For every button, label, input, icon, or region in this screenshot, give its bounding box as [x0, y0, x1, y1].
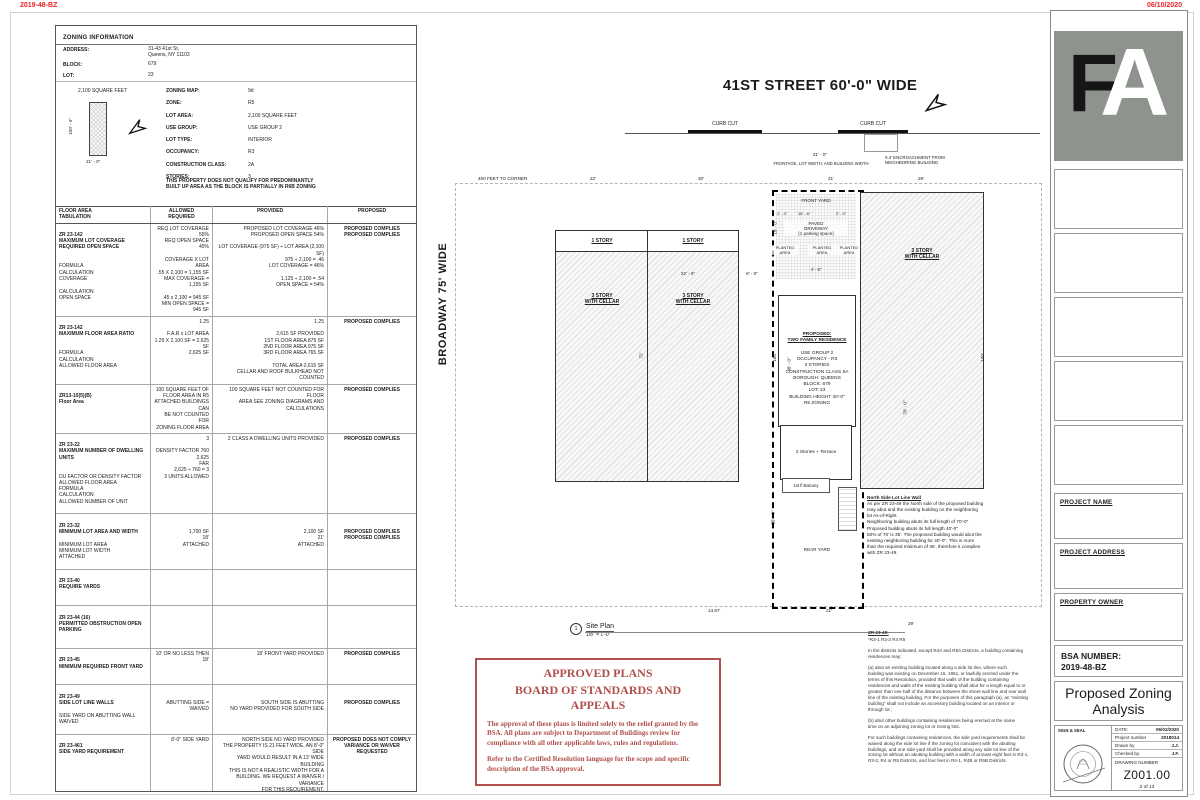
block-value: 679 — [148, 61, 156, 67]
property-owner-box: PROPERTY OWNER — [1054, 593, 1183, 641]
zr-sub-lines: MINIMUM LOT AREA MINIMUM LOT WIDTH ATTAC… — [59, 542, 147, 561]
drawn-by-label: Drawn by — [1115, 743, 1134, 748]
dim-front-right: 2' - 3" — [836, 211, 846, 216]
corner-distance-note: 450 FEET TO CORNER — [478, 176, 527, 181]
address-label: ADDRESS: — [63, 47, 89, 53]
caption-line — [585, 632, 905, 633]
provided-cell — [213, 570, 328, 605]
lot-label: LOT: — [63, 73, 74, 79]
col-header: ALLOWED REQUIRED — [151, 206, 213, 223]
col-header: PROPOSED — [328, 206, 416, 223]
dim-bottom-21: 21' — [826, 608, 832, 613]
dim-72ft: 72' — [639, 353, 644, 359]
north-note-body: As per ZR 23-49 the North side of the pr… — [867, 501, 1047, 556]
zr-reference: ZR 23-49 SIDE LOT LINE WALLS — [59, 694, 147, 707]
zoning-field-label: ZONE: — [166, 100, 248, 112]
curb-cut-label: CURB CUT — [688, 121, 762, 127]
doc-date-top-right: 06/10/2020 — [1147, 2, 1182, 9]
sheet-title-box: Proposed Zoning Analysis — [1054, 681, 1183, 721]
proposed-cell: PROPOSED COMPLIES PROPOSED COMPLIES — [328, 224, 416, 316]
allowed-cell: 10' OR NO LESS THEN 18' — [151, 649, 213, 684]
dim-22ft: 22' — [590, 176, 596, 181]
stamp-title-2: BOARD OF STANDARDS AND APPEALS — [487, 683, 709, 713]
row-label-cell: ZR 23-40 REQUIRE YARDS — [56, 570, 151, 605]
zr-reference: ZR 23-45 MINIMUM REQUIRED FRONT YARD — [59, 657, 147, 670]
project-number-value: 2018014 — [1161, 735, 1179, 740]
stamp-title-1: APPROVED PLANS — [487, 666, 709, 681]
tabulation-row: ZR 23-32 MINIMUM LOT AREA AND WIDTH MINI… — [56, 514, 416, 569]
checked-by-value: J.F. — [1172, 751, 1179, 756]
meta-rows: DATE: 06/02/2020 Project number 2018014 … — [1112, 726, 1182, 790]
proposed-cell: PROPOSED COMPLIES — [328, 434, 416, 514]
divider — [56, 81, 416, 82]
frontage-caption: FRONTAGE, LOT WIDTH, AND BUILDING WIDTH — [746, 161, 896, 166]
dim-4-6: 4' - 6" — [800, 267, 832, 272]
allowed-cell — [151, 570, 213, 605]
dim-21ft: 21' — [828, 176, 834, 181]
site-plan: 41ST STREET 60'-0" WIDE BROADWAY 75' WID… — [430, 75, 1050, 665]
zr-sub-lines: FORMULA CALCULATION COVERAGE CALCULATION… — [59, 257, 147, 301]
provided-cell: 100 SQUARE FEET NOT COUNTED FOR FLOOR AR… — [213, 385, 328, 433]
first-floor-balcony: 1st fl Balcony — [782, 478, 830, 493]
row-label-cell: ZR 23-49 SIDE LOT LINE WALLS SIDE YARD O… — [56, 685, 151, 733]
dim-70-0: 70' - 0" — [903, 400, 908, 414]
zr-reference: ZR 23-461 SIDE YARD REQUIREMENT — [59, 743, 147, 756]
revision-box — [1054, 425, 1183, 485]
drawing-caption: 1 Site Plan 1/8" = 1'-0" — [570, 623, 614, 638]
north-arrow-icon — [922, 90, 948, 116]
zr-note-districts: *R3-1 R3-2 R4 R5 — [868, 637, 1048, 643]
floor-area-tabulation-table: FLOOR AREA TABULATION ALLOWED REQUIRED P… — [56, 206, 416, 791]
curb-cut-bar — [688, 130, 762, 133]
allowed-cell: 3 DENSITY FACTOR 760 2,625 FAR 2,625 ÷ 7… — [151, 434, 213, 514]
zoning-information-title: ZONING INFORMATION — [63, 35, 133, 41]
lot-depth-dim: 100' - 0" — [68, 118, 73, 135]
project-address-box: PROJECT ADDRESS — [1054, 543, 1183, 589]
dim-30ft: 30' — [698, 176, 704, 181]
allowed-cell: REQ LOT COVERAGE 55% REQ OPEN SPACE 45% … — [151, 224, 213, 316]
zoning-field-label: ZONING MAP: — [166, 88, 248, 100]
zoning-fields: ZONING MAP: 9d ZONE: R5 LOT AREA: 2,100 … — [166, 88, 411, 186]
allowed-cell: 1,700 SF 18' ATTACHED — [151, 514, 213, 568]
drawn-by-value: J.J. — [1171, 743, 1179, 748]
zoning-field-label: LOT TYPE: — [166, 137, 248, 149]
zr-reference: ZR 23-32 MINIMUM LOT AREA AND WIDTH — [59, 523, 147, 536]
neighbor-building-right: 3 STORY WITH CELLAR — [860, 192, 984, 489]
proposed-cell: PROPOSED COMPLIES — [328, 649, 416, 684]
zoning-field-label: OCCUPANCY: — [166, 149, 248, 161]
checked-by-label: Checked by — [1115, 751, 1139, 756]
rear-yard-label: REAR YARD — [782, 547, 852, 552]
proposed-cell — [328, 570, 416, 605]
curb-cut-bar — [838, 130, 908, 133]
zr-sub-lines: FORMULA CALCULATION ALLOWED FLOOR AREA — [59, 344, 147, 369]
drawing-sheet: 2019-48-BZ 06/10/2020 ZONING INFORMATION… — [0, 0, 1200, 800]
proposed-cell: PROPOSED COMPLIES — [328, 385, 416, 433]
proposed-building-text: PROPOSED: TWO FAMILY RESIDENCE USE GROUP… — [781, 326, 853, 413]
neighbor-building-2-label: 3 STORY WITH CELLAR — [648, 293, 738, 305]
zoning-field-value: 2A — [248, 162, 411, 174]
col-header: PROVIDED — [213, 206, 328, 223]
caption-title: Site Plan — [586, 623, 614, 632]
proposed-building-body: USE GROUP 2 OCCUPANCY - R3 3 STORIES CON… — [781, 351, 853, 407]
signature-meta-box: SIGN & SEAL DATE: 06/02/2020 — [1054, 725, 1183, 791]
zoning-field-value: USE GROUP 2 — [248, 125, 411, 137]
date-label: DATE: — [1115, 727, 1128, 732]
dim-100-right: 100' — [980, 353, 985, 362]
paved-driveway-label: PAVED DRIVEWAY (1 parking space) — [784, 221, 848, 236]
dim-29ft: 29' — [918, 176, 924, 181]
proposed-building-title: PROPOSED: TWO FAMILY RESIDENCE — [781, 332, 853, 344]
zoning-field-value: R3 — [248, 149, 411, 161]
zoning-field-row: ZONE: R5 — [166, 100, 411, 112]
stamp-paragraph-2: Refer to the Certified Resolution langua… — [487, 755, 709, 774]
tabulation-row: ZR13-10(5)(B) Floor Area 100 SQUARE FEET… — [56, 385, 416, 434]
curb-cut-label: CURB CUT — [838, 121, 908, 127]
tabulation-header-row: FLOOR AREA TABULATION ALLOWED REQUIRED P… — [56, 206, 416, 224]
lot-diagram — [89, 102, 107, 156]
street-line — [625, 133, 1040, 134]
neighbor-building-1-story: 1 STORY — [556, 231, 648, 252]
dim-35-9: 35' - 9" — [771, 510, 776, 524]
planted-area-label: PLANTED AREA — [771, 245, 799, 255]
zr-reference: ZR 23-142 MAXIMUM FLOOR AREA RATIO — [59, 325, 147, 338]
zr-reference: ZR 23-142 MAXIMUM LOT COVERAGE REQUIRED … — [59, 232, 147, 251]
col-header: FLOOR AREA TABULATION — [56, 206, 151, 223]
provided-cell: NORTH SIDE NO YARD PROVIDED THE PROPERTY… — [213, 735, 328, 791]
north-arrow-icon — [126, 116, 148, 138]
zoning-note: THIS PROPERTY DOES NOT QUALIFY FOR PREDO… — [166, 178, 326, 191]
terrace-section: 2 Stories + Terrace — [780, 425, 852, 480]
zoning-field-label: CONSTRUCTION CLASS: — [166, 162, 248, 174]
zoning-field-value: INTERIOR — [248, 137, 411, 149]
dim-front-mid: 16' - 6" — [798, 211, 810, 216]
neighbor-building-2-story: 1 STORY — [648, 231, 738, 252]
encroachment-note: 0.4' ENCROACHMENT FROM NEIGHBORING BUILD… — [885, 155, 945, 165]
zoning-field-value: 2,100 SQUARE FEET — [248, 113, 411, 125]
tabulation-row: ZR 23-40 REQUIRE YARDS — [56, 570, 416, 606]
project-name-box: PROJECT NAME — [1054, 493, 1183, 539]
firm-logo: F A — [1054, 31, 1183, 161]
tabulation-row: ZR 23-45 MINIMUM REQUIRED FRONT YARD 10'… — [56, 649, 416, 685]
planted-area-label: PLANTED AREA — [808, 245, 836, 255]
allowed-cell: ABUTTING SIDE = WAIVED — [151, 685, 213, 733]
bsa-number-box: BSA NUMBER: 2019-48-BZ — [1054, 645, 1183, 677]
sheet-index: 2 of 13 — [1112, 782, 1182, 790]
dim-8-0: 8' - 0" — [735, 271, 769, 276]
zr-note-ref: ZR 23-49: — [868, 630, 889, 635]
bsa-approval-stamp: APPROVED PLANS BOARD OF STANDARDS AND AP… — [475, 658, 721, 786]
zoning-field-row: LOT TYPE: INTERIOR — [166, 137, 411, 149]
zr-note-intro: In the districts indicated, except R4A a… — [868, 648, 1048, 660]
date-value: 06/02/2020 — [1156, 727, 1179, 732]
broadway-label: BROADWAY 75' WIDE — [437, 224, 449, 384]
stamp-paragraph-1: The approval of these plans is limited s… — [487, 720, 709, 748]
zoning-field-value: 9d — [248, 88, 411, 100]
project-name-label: PROJECT NAME — [1060, 499, 1112, 506]
architect-seal-icon — [1059, 738, 1107, 786]
dim-100-left: 100' — [772, 353, 777, 362]
allowed-cell: 100 SQUARE FEET OF FLOOR AREA IN R5 ATTA… — [151, 385, 213, 433]
zr-23-49-note: ZR 23-49: *R3-1 R3-2 R4 R5 In the distri… — [868, 630, 1048, 769]
zoning-panel: ZONING INFORMATION ADDRESS: 31-43 41st S… — [55, 25, 417, 792]
tabulation-row: ZR 23-461 SIDE YARD REQUIREMENT 8'-0" SI… — [56, 735, 416, 791]
zr-note-para-a: (a) abut an existing building located al… — [868, 665, 1048, 713]
drawn-by-row: Drawn by J.J. — [1112, 742, 1182, 750]
checked-by-row: Checked by J.F. — [1112, 750, 1182, 758]
dim-22-0: 22' - 0" — [648, 271, 728, 276]
zr-sub-lines: DU FACTOR OR DENSITY FACTOR ALLOWED FLOO… — [59, 467, 147, 505]
block-label: BLOCK: — [63, 62, 82, 68]
tabulation-row: ZR 23-142 MAXIMUM FLOOR AREA RATIO FORMU… — [56, 317, 416, 385]
revision-box — [1054, 169, 1183, 229]
zr-reference: ZR 23-44 (16) PERMITTED OBSTRUCTION OPEN… — [59, 615, 147, 634]
zoning-field-label: USE GROUP: — [166, 125, 248, 137]
revision-box — [1054, 297, 1183, 357]
row-label-cell: ZR 23-461 SIDE YARD REQUIREMENT — [56, 735, 151, 791]
provided-cell: 18' FRONT YARD PROVIDED — [213, 649, 328, 684]
proposed-cell: PROPOSED COMPLIES — [328, 317, 416, 384]
zr-sub-lines: SIDE YARD ON ABUTTING WALL WAIVED — [59, 713, 147, 726]
allowed-cell: 8'-0" SIDE YARD — [151, 735, 213, 791]
revision-box — [1054, 361, 1183, 421]
zr-reference: ZR 23-40 REQUIRE YARDS — [59, 578, 147, 591]
allowed-cell: 1.25 F.A.R x LOT AREA 1.25 X 2,100 SF = … — [151, 317, 213, 384]
zoning-field-row: LOT AREA: 2,100 SQUARE FEET — [166, 113, 411, 125]
neighbor-building-2: 1 STORY 3 STORY WITH CELLAR — [647, 230, 739, 482]
project-number-row: Project number 2018014 — [1112, 734, 1182, 742]
divider — [56, 44, 416, 45]
logo-letter-a: A — [1100, 35, 1169, 131]
dim-18-0-left: 18' - 0" — [773, 220, 778, 234]
date-row: DATE: 06/02/2020 — [1112, 726, 1182, 734]
row-label-cell: ZR 23-45 MINIMUM REQUIRED FRONT YARD — [56, 649, 151, 684]
neighbor-building-1-label: 3 STORY WITH CELLAR — [556, 293, 648, 305]
row-label-cell: ZR 23-22 MAXIMUM NUMBER OF DWELLING UNIT… — [56, 434, 151, 514]
drawing-number-label: DRAWING NUMBER — [1112, 758, 1182, 767]
zoning-field-row: USE GROUP: USE GROUP 2 — [166, 125, 411, 137]
zr-reference: ZR13-10(5)(B) Floor Area — [59, 393, 147, 406]
caption-number: 1 — [570, 623, 582, 635]
tabulation-body: ZR 23-142 MAXIMUM LOT COVERAGE REQUIRED … — [56, 224, 416, 791]
neighbor-building-1: 1 STORY 3 STORY WITH CELLAR — [555, 230, 649, 482]
row-label-cell: ZR 23-44 (16) PERMITTED OBSTRUCTION OPEN… — [56, 606, 151, 648]
zr-reference: ZR 23-22 MAXIMUM NUMBER OF DWELLING UNIT… — [59, 442, 147, 461]
provided-cell: SOUTH SIDE IS ABUTTING NO YARD PROVIDED … — [213, 685, 328, 733]
project-address-label: PROJECT ADDRESS — [1060, 549, 1125, 556]
stairs — [838, 487, 857, 531]
doc-ref-top-left: 2019-48-BZ — [20, 2, 57, 9]
zoning-information: ZONING INFORMATION ADDRESS: 31-43 41st S… — [56, 26, 416, 207]
sign-seal-label: SIGN & SEAL — [1058, 728, 1085, 733]
provided-cell: PROPOSED LOT COVERAGE 46% PROPOSED OPEN … — [213, 224, 328, 316]
zoning-field-label: LOT AREA: — [166, 113, 248, 125]
row-label-cell: ZR 23-142 MAXIMUM FLOOR AREA RATIO FORMU… — [56, 317, 151, 384]
dim-48-0: 48' - 0" — [787, 357, 792, 371]
zr-note-para-b: (b) abut other buildings containing resi… — [868, 718, 1048, 730]
row-label-cell: ZR 23-32 MINIMUM LOT AREA AND WIDTH MINI… — [56, 514, 151, 568]
zoning-field-row: ZONING MAP: 9d — [166, 88, 411, 100]
street-detail-box — [864, 134, 898, 152]
dim-front-left: 2' - 3" — [777, 211, 787, 216]
row-label-cell: ZR13-10(5)(B) Floor Area — [56, 385, 151, 433]
bsa-number: BSA NUMBER: 2019-48-BZ — [1061, 651, 1121, 673]
north-side-lot-line-note: North Side Lot Line Wall As per ZR 23-49… — [867, 495, 1047, 556]
zoning-field-row: CONSTRUCTION CLASS: 2A — [166, 162, 411, 174]
zoning-field-value: R5 — [248, 100, 411, 112]
lot-area-caption: 2,100 SQUARE FEET — [78, 88, 127, 94]
provided-cell: 1.25 2,615 SF PROVIDED 1ST FLOOR AREA 87… — [213, 317, 328, 384]
tabulation-row: ZR 23-142 MAXIMUM LOT COVERAGE REQUIRED … — [56, 224, 416, 317]
provided-cell — [213, 606, 328, 648]
provided-cell: 2,100 SF 21' ATTACHED — [213, 514, 328, 568]
dim-bottom-29: 29' — [908, 621, 914, 626]
frontage-dim: 21' - 0" — [760, 152, 880, 157]
row-label-cell: ZR 23-142 MAXIMUM LOT COVERAGE REQUIRED … — [56, 224, 151, 316]
tabulation-row: ZR 23-49 SIDE LOT LINE WALLS SIDE YARD O… — [56, 685, 416, 734]
project-number-label: Project number — [1115, 735, 1146, 740]
proposed-cell: PROPOSED DOES NOT COMPLY VARIANCE OR WAI… — [328, 735, 416, 791]
proposed-cell: PROPOSED COMPLIES — [328, 685, 416, 733]
zoning-field-row: OCCUPANCY: R3 — [166, 149, 411, 161]
allowed-cell — [151, 606, 213, 648]
sign-seal-area: SIGN & SEAL — [1055, 726, 1112, 790]
tabulation-row: ZR 23-44 (16) PERMITTED OBSTRUCTION OPEN… — [56, 606, 416, 649]
lot-value: 23 — [148, 72, 154, 78]
lot-width-dim: 21' - 0" — [86, 159, 100, 164]
neighbor-building-right-label: 3 STORY WITH CELLAR — [861, 248, 983, 260]
tabulation-row: ZR 23-22 MAXIMUM NUMBER OF DWELLING UNIT… — [56, 434, 416, 515]
address-value: 31-43 41st St, Queens, NY 11103 — [148, 46, 190, 58]
zr-note-para-c: For such buildings containing residences… — [868, 735, 1048, 765]
proposed-cell — [328, 606, 416, 648]
title-block: F A PROJECT NAME PROJECT ADDRESS PROPERT… — [1050, 10, 1188, 797]
planted-area-label: PLANTED AREA — [836, 245, 862, 255]
drawing-number-value: Z001.00 — [1112, 767, 1182, 782]
proposed-cell: PROPOSED COMPLIES PROPOSED COMPLIES — [328, 514, 416, 568]
provided-cell: 2 CLASS A DWELLING UNITS PROVIDED — [213, 434, 328, 514]
property-owner-label: PROPERTY OWNER — [1060, 599, 1123, 606]
front-yard-label: FRONT YARD — [776, 198, 856, 203]
revision-box — [1054, 233, 1183, 293]
dim-14-67: 14.67' — [708, 608, 720, 613]
